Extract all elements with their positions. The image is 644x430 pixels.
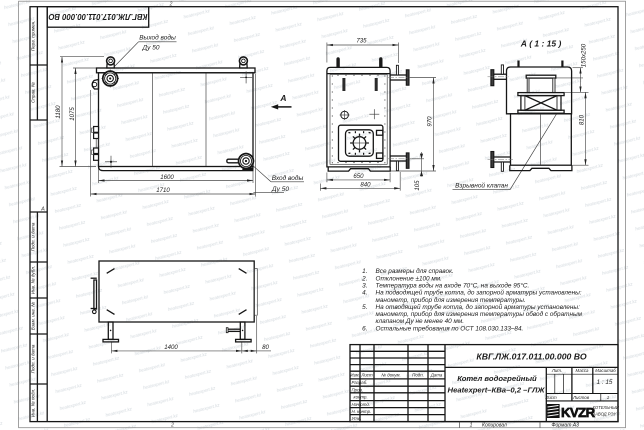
svg-text:Котел водогрейный: Котел водогрейный (457, 374, 537, 383)
svg-text:1600: 1600 (160, 174, 174, 181)
svg-text:манометр, прибор для измерения: манометр, прибор для измерения температу… (376, 296, 526, 304)
svg-text:Ду 50: Ду 50 (142, 45, 160, 52)
svg-text:5.: 5. (362, 304, 367, 311)
svg-text:Лит.: Лит. (551, 368, 562, 373)
svg-text:Подп. и дата: Подп. и дата (31, 222, 36, 251)
svg-text:Температура воды на входе 70°С: Температура воды на входе 70°С, на выход… (376, 282, 530, 290)
svg-text:Лист: Лист (544, 395, 557, 400)
svg-text:1 : 15: 1 : 15 (597, 379, 613, 386)
svg-text:Н. контр.: Н. контр. (352, 409, 372, 414)
svg-text:Копировал: Копировал (482, 422, 507, 428)
svg-text:КВГ.ЛЖ.017.011.00.000 ВО: КВГ.ЛЖ.017.011.00.000 ВО (476, 351, 586, 361)
svg-text:Heatexpert–КВа–0,2 –ГЛЖ: Heatexpert–КВа–0,2 –ГЛЖ (448, 385, 546, 394)
svg-text:735: 735 (356, 38, 367, 45)
svg-text:Вход воды: Вход воды (272, 174, 304, 182)
svg-text:Масштаб: Масштаб (595, 368, 616, 373)
svg-text:Листов: Листов (572, 395, 590, 400)
svg-text:Масса: Масса (576, 368, 590, 373)
svg-text:контр.: контр. (354, 395, 368, 400)
svg-text:KVZR: KVZR (561, 405, 596, 420)
svg-text:ЗАВОД РЭУ: ЗАВОД РЭУ (593, 412, 618, 417)
svg-text:2: 2 (169, 2, 173, 8)
svg-text:КВГ.ЛЖ.017.011.00.000 ВО: КВГ.ЛЖ.017.011.00.000 ВО (49, 12, 148, 21)
svg-text:810: 810 (579, 114, 586, 125)
svg-text:1400: 1400 (164, 344, 178, 351)
svg-text:№ докум.: № докум. (381, 373, 400, 378)
svg-text:80: 80 (262, 344, 269, 351)
svg-text:Ду 50: Ду 50 (271, 186, 289, 193)
svg-text:Инв. № подл.: Инв. № подл. (31, 389, 36, 418)
svg-text:1: 1 (470, 422, 473, 428)
svg-text:1710: 1710 (156, 187, 170, 194)
svg-text:Изм.: Изм. (350, 373, 359, 378)
svg-text:Взрывной клапан: Взрывной клапан (455, 181, 508, 189)
svg-text:Все размеры для справок.: Все размеры для справок. (376, 267, 454, 275)
svg-text:105: 105 (414, 180, 421, 191)
svg-text:970: 970 (427, 116, 434, 127)
svg-text:Нач.отд.: Нач.отд. (352, 402, 371, 407)
svg-text:Перв. примен.: Перв. примен. (31, 21, 36, 52)
svg-text:На отводящей трубе котла, до з: На отводящей трубе котла, до запорной ар… (376, 303, 581, 311)
svg-text:150х250: 150х250 (580, 43, 587, 67)
svg-text:Подп.: Подп. (412, 373, 424, 378)
svg-text:Разраб.: Разраб. (352, 380, 368, 385)
svg-text:Взам. инв. №: Взам. инв. № (31, 302, 36, 330)
svg-text:1180: 1180 (55, 105, 62, 119)
svg-text:Лист: Лист (360, 373, 373, 378)
svg-text:Выход воды: Выход воды (139, 34, 176, 42)
svg-text:6.: 6. (362, 325, 367, 332)
svg-text:А: А (279, 93, 286, 103)
svg-text:1075: 1075 (69, 107, 76, 121)
svg-text:Подп. и дата: Подп. и дата (31, 344, 36, 373)
svg-text:Дата: Дата (430, 373, 443, 378)
svg-text:Пров.: Пров. (352, 387, 364, 392)
svg-text:А: А (40, 207, 45, 213)
svg-text:А ( 1 : 15 ): А ( 1 : 15 ) (520, 39, 562, 49)
svg-text:манометр, прибор для измерения: манометр, прибор для измерения температу… (376, 310, 583, 318)
svg-text:Справ. №: Справ. № (31, 82, 36, 103)
svg-text:2.: 2. (361, 275, 367, 282)
svg-text:4.: 4. (362, 290, 367, 297)
svg-text:2: 2 (170, 423, 174, 429)
svg-text:Остальные требования по ОСТ 10: Остальные требования по ОСТ 108.030.133–… (376, 324, 524, 332)
svg-text:Утв.: Утв. (352, 416, 362, 421)
svg-text:Отклонение ±100 мм.: Отклонение ±100 мм. (376, 275, 442, 282)
svg-text:Формат А3: Формат А3 (552, 422, 580, 428)
svg-text:Инв. № дубл.: Инв. № дубл. (31, 266, 36, 294)
svg-text:3.: 3. (362, 283, 367, 290)
svg-text:клапаном Ду не менее 40 мм.: клапаном Ду не менее 40 мм. (376, 318, 465, 325)
svg-text:650: 650 (353, 173, 364, 180)
svg-text:КОТЕЛЬНЫЙ: КОТЕЛЬНЫЙ (593, 405, 619, 410)
svg-text:840: 840 (360, 182, 371, 189)
svg-text:На подводящей трубе котла, до: На подводящей трубе котла, до запорной а… (376, 289, 582, 297)
svg-text:1.: 1. (362, 268, 367, 275)
